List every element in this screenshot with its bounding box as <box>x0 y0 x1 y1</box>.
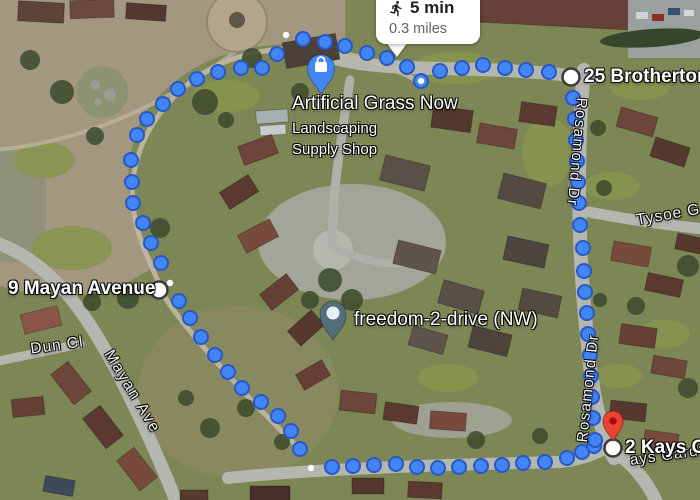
poi-subtitle-line2: Supply Shop <box>292 139 458 160</box>
address-label-9-mayan-avenue[interactable]: 9 Mayan Avenue <box>8 278 155 300</box>
poi-subtitle-line1: Landscaping <box>292 118 458 139</box>
route-waypoint-dot <box>167 280 173 286</box>
address-label-25-brotherton[interactable]: 25 Brotherton <box>584 66 700 88</box>
address-circle-marker <box>563 69 580 86</box>
walking-person-icon <box>388 0 405 17</box>
address-label-2-kays-gardens[interactable]: 2 Kays G <box>625 437 700 459</box>
poi-label-freedom-2-drive[interactable]: freedom-2-drive (NW) <box>354 309 538 331</box>
poi-label-artificial-grass-now[interactable]: Artificial Grass Now Landscaping Supply … <box>292 93 458 160</box>
poi-title: Artificial Grass Now <box>292 93 458 115</box>
freedom-pin-dot <box>327 307 340 320</box>
route-waypoint-dot <box>283 32 289 38</box>
google-maps-satellite-view[interactable]: Rosamond Dr Rosamond Dr Tysoe Ga Mayan A… <box>0 0 700 500</box>
address-circle-marker <box>605 440 622 457</box>
bubble-tail <box>386 42 408 57</box>
route-waypoint-dot <box>308 465 314 471</box>
route-duration: 5 min <box>410 0 454 18</box>
red-pin-dot <box>609 417 617 425</box>
route-info-bubble[interactable]: 5 min 0.3 miles <box>376 0 480 44</box>
route-distance: 0.3 miles <box>389 21 480 37</box>
